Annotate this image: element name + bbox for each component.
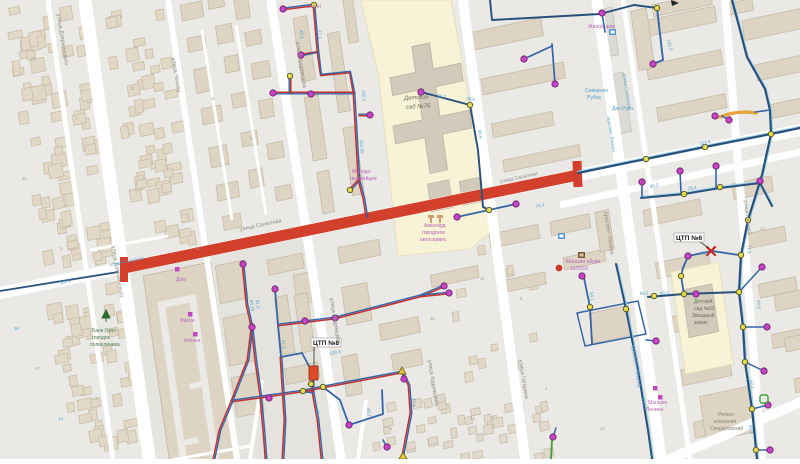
- svg-text:Жилой дом: Жилой дом: [588, 23, 615, 30]
- svg-text:150.2: 150.2: [361, 90, 367, 102]
- svg-text:25: 25: [22, 176, 27, 181]
- svg-text:сад №63: сад №63: [694, 306, 715, 312]
- svg-text:Магазин обуви: Магазин обуви: [566, 259, 600, 265]
- svg-text:88.1: 88.1: [640, 290, 650, 296]
- svg-text:44.5: 44.5: [756, 300, 762, 310]
- svg-text:Северная: Северная: [585, 88, 608, 94]
- svg-text:Свердловский: Свердловский: [710, 425, 743, 432]
- svg-text:13: 13: [760, 226, 765, 231]
- svg-text:91.0: 91.0: [255, 300, 261, 310]
- svg-text:городское: городское: [422, 230, 445, 236]
- svg-text:Регион: Регион: [718, 412, 734, 418]
- svg-text:54.1: 54.1: [589, 292, 595, 302]
- svg-text:11: 11: [480, 276, 485, 281]
- svg-text:гвардейцев: гвардейцев: [350, 175, 377, 182]
- svg-text:14: 14: [58, 416, 64, 421]
- svg-text:31: 31: [130, 86, 135, 91]
- svg-text:31/2010: 31/2010: [570, 266, 588, 272]
- svg-text:77.4: 77.4: [411, 398, 417, 408]
- svg-text:16: 16: [210, 96, 215, 101]
- svg-text:Ателье: Ателье: [184, 338, 201, 344]
- svg-text:36: 36: [14, 326, 20, 331]
- svg-text:Дом: Дом: [176, 277, 186, 283]
- svg-text:Магазин: Магазин: [648, 400, 668, 406]
- svg-text:Салют: Салют: [306, 4, 322, 10]
- svg-text:замок: замок: [694, 320, 708, 326]
- svg-text:городок: городок: [92, 335, 111, 341]
- svg-text:77.8: 77.8: [746, 245, 752, 255]
- svg-text:66.3: 66.3: [748, 425, 754, 435]
- svg-text:Рубка: Рубка: [587, 95, 601, 101]
- svg-text:21: 21: [195, 246, 200, 251]
- svg-text:45.8: 45.8: [299, 30, 304, 40]
- svg-text:поликлиника: поликлиника: [90, 342, 120, 348]
- svg-text:18: 18: [150, 166, 155, 171]
- svg-text:48.7: 48.7: [366, 408, 372, 418]
- svg-text:19: 19: [600, 426, 605, 431]
- svg-text:Ленина: Ленина: [646, 407, 663, 413]
- svg-text:77.1: 77.1: [317, 30, 323, 40]
- svg-text:Авангард: Авангард: [424, 223, 446, 229]
- svg-text:12: 12: [30, 56, 35, 61]
- svg-text:161.69: 161.69: [359, 140, 365, 155]
- svg-text:Фасон: Фасон: [180, 318, 195, 324]
- svg-text:52.7: 52.7: [749, 380, 755, 390]
- svg-text:Звездный: Звездный: [692, 312, 715, 319]
- svg-text:29.6: 29.6: [315, 410, 321, 420]
- svg-text:Дво Руза: Дво Руза: [612, 106, 633, 112]
- svg-text:23: 23: [470, 416, 475, 421]
- svg-text:Банк Урал: Банк Урал: [92, 328, 116, 334]
- svg-text:40: 40: [35, 366, 40, 371]
- svg-text:ЦТП №6: ЦТП №6: [676, 235, 702, 242]
- svg-text:Молодо-: Молодо-: [352, 169, 372, 175]
- svg-text:57.3: 57.3: [281, 340, 287, 350]
- svg-text:автосервис: автосервис: [420, 237, 447, 243]
- svg-text:39.9: 39.9: [660, 290, 670, 296]
- svg-text:компания: компания: [714, 419, 737, 425]
- svg-text:15: 15: [430, 316, 435, 321]
- svg-text:Детский: Детский: [694, 298, 713, 305]
